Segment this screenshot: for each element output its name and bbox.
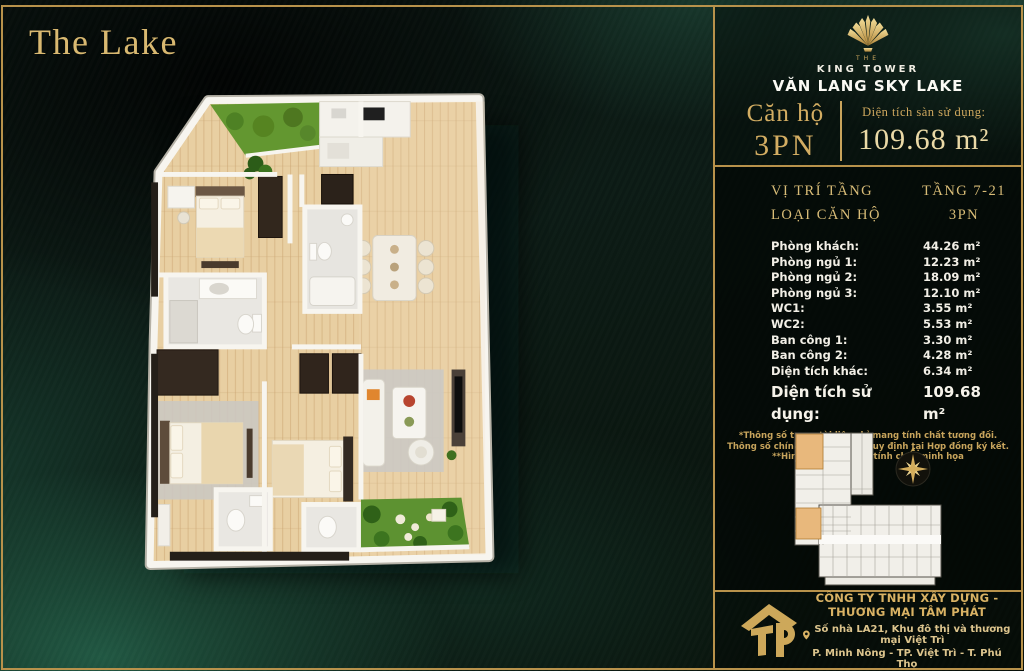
table-row: Phòng khách:44.26 m²: [771, 239, 1007, 255]
row-label: Phòng ngủ 1:: [771, 255, 923, 271]
row-value: 4.28 m²: [923, 348, 1007, 364]
area-table: Phòng khách:44.26 m² Phòng ngủ 1:12.23 m…: [771, 239, 1007, 425]
row-value: 5.53 m²: [923, 317, 1007, 333]
brand-subname: VĂN LANG SKY LAKE: [715, 77, 1021, 95]
row-value: 12.23 m²: [923, 255, 1007, 271]
row-value: 6.34 m²: [923, 364, 1007, 380]
unit-type: 3PN: [747, 129, 825, 163]
unit-area-block: Diện tích sàn sử dụng: 109.68 m²: [858, 105, 989, 157]
row-label: WC2:: [771, 317, 923, 333]
table-row: Phòng ngủ 1:12.23 m²: [771, 255, 1007, 271]
unit-kind-row: LOẠI CĂN HỘ 3PN: [771, 203, 1007, 227]
table-row: Diện tích khác:6.34 m²: [771, 364, 1007, 380]
row-value: 3.30 m²: [923, 333, 1007, 349]
total-value: 109.68 m²: [923, 381, 1007, 425]
map-pin-icon: [803, 629, 810, 641]
row-label: Phòng ngủ 3:: [771, 286, 923, 302]
row-label: Ban công 2:: [771, 348, 923, 364]
tp-house-icon: [739, 601, 799, 659]
floor-position-value: TẦNG 7-21: [921, 179, 1007, 203]
table-row: Ban công 1:3.30 m²: [771, 333, 1007, 349]
spec-section: VỊ TRÍ TẦNG TẦNG 7-21 LOẠI CĂN HỘ 3PN Ph…: [715, 165, 1021, 592]
row-label: Phòng ngủ 2:: [771, 270, 923, 286]
spec-panel: THE KING TOWER VĂN LANG SKY LAKE Căn hộ …: [715, 7, 1021, 668]
unit-kind-label: LOẠI CĂN HỘ: [771, 203, 921, 227]
address-text: Số nhà LA21, Khu đô thị và thương mại Vi…: [814, 624, 1011, 646]
wc-small-right: [304, 504, 359, 549]
company-name: CÔNG TY TNHH XÂY DỰNG - THƯƠNG MẠI TÂM P…: [803, 591, 1011, 619]
table-row: Phòng ngủ 3:12.10 m²: [771, 286, 1007, 302]
footer-text: CÔNG TY TNHH XÂY DỰNG - THƯƠNG MẠI TÂM P…: [799, 591, 1021, 670]
unit-type-block: Căn hộ 3PN: [747, 100, 825, 163]
panel-divider: [713, 5, 715, 670]
table-row: Phòng ngủ 2:18.09 m²: [771, 270, 1007, 286]
floor-plan-render: [3, 7, 713, 668]
row-value: 3.55 m²: [923, 301, 1007, 317]
total-label: Diện tích sử dụng:: [771, 381, 923, 425]
row-label: Diện tích khác:: [771, 364, 923, 380]
row-label: WC1:: [771, 301, 923, 317]
poster: The Lake: [0, 0, 1024, 671]
bathroom-wc1: [305, 207, 360, 311]
garden-balcony-2: [361, 498, 469, 550]
row-value: 18.09 m²: [923, 270, 1007, 286]
floor-position-label: VỊ TRÍ TẦNG: [771, 179, 921, 203]
total-row: Diện tích sử dụng: 109.68 m²: [771, 381, 1007, 425]
row-label: Phòng khách:: [771, 239, 923, 255]
brand-name: KING TOWER: [715, 64, 1021, 75]
dining-set: [355, 236, 434, 301]
building-key-plan: [785, 429, 955, 589]
brand-block: THE KING TOWER VĂN LANG SKY LAKE: [715, 13, 1021, 95]
row-value: 44.26 m²: [923, 239, 1007, 255]
floor-position-row: VỊ TRÍ TẦNG TẦNG 7-21: [771, 179, 1007, 203]
compass-star-icon: [896, 447, 930, 487]
row-value: 12.10 m²: [923, 286, 1007, 302]
bathroom-wc2: [166, 275, 265, 347]
row-label: Ban công 1:: [771, 333, 923, 349]
unit-summary: Căn hộ 3PN Diện tích sàn sử dụng: 109.68…: [715, 95, 1021, 167]
lotus-fan-icon: [845, 13, 891, 53]
table-row: WC1:3.55 m²: [771, 301, 1007, 317]
unit-label: Căn hộ: [747, 100, 825, 128]
address-line-2: P. Minh Nông - TP. Việt Trì - T. Phú Thọ: [803, 648, 1011, 670]
table-row: WC2:5.53 m²: [771, 317, 1007, 333]
unit-kind-value: 3PN: [921, 203, 1007, 227]
address-line-1: Số nhà LA21, Khu đô thị và thương mại Vi…: [803, 624, 1011, 646]
area-label: Diện tích sàn sử dụng:: [858, 105, 989, 120]
floorplan-panel: The Lake: [3, 7, 713, 668]
table-row: Ban công 2:4.28 m²: [771, 348, 1007, 364]
company-footer: CÔNG TY TNHH XÂY DỰNG - THƯƠNG MẠI TÂM P…: [715, 590, 1021, 668]
gold-divider: [840, 101, 842, 161]
area-value: 109.68 m²: [858, 123, 989, 157]
brand-the: THE: [715, 55, 1021, 62]
